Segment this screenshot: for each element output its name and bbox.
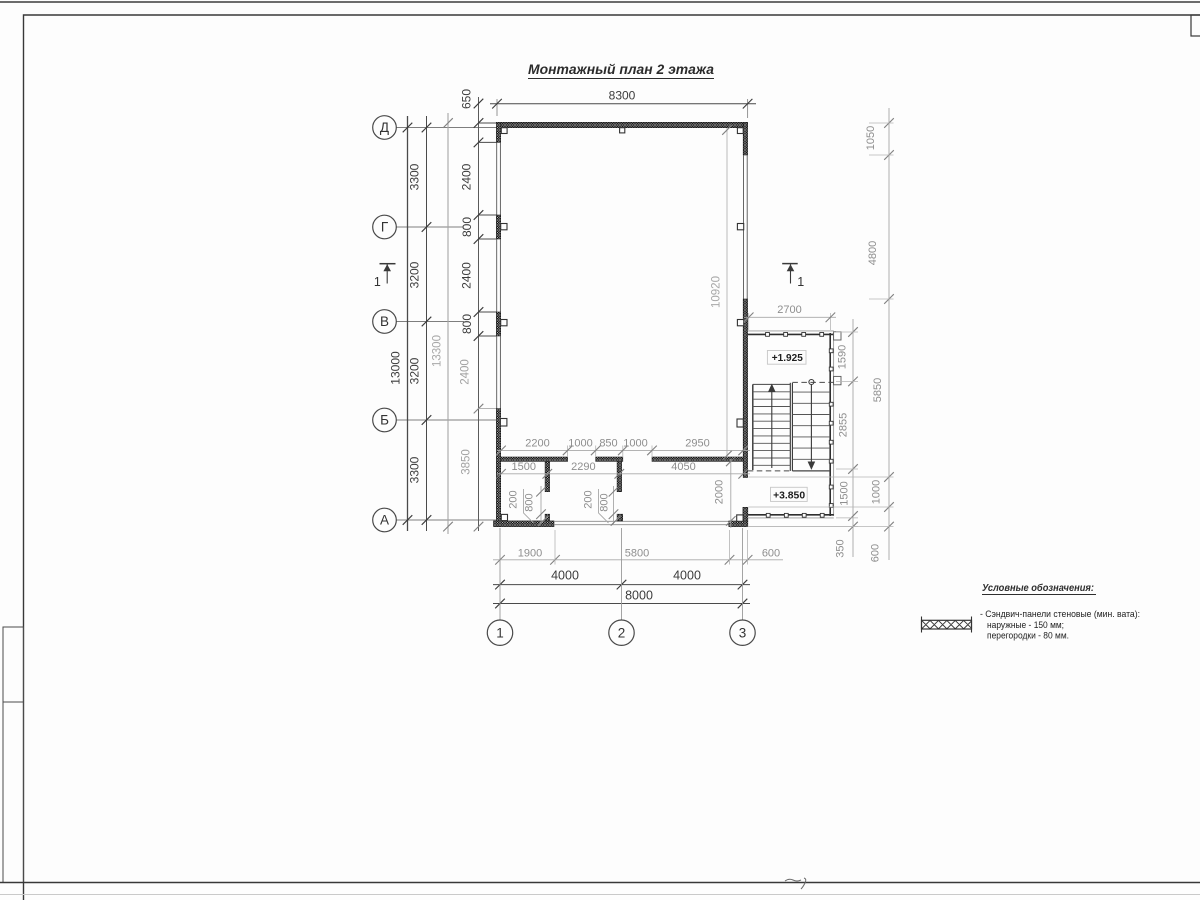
svg-text:800: 800	[524, 493, 536, 511]
svg-text:1590: 1590	[837, 345, 849, 369]
svg-text:1: 1	[797, 275, 804, 289]
svg-text:1: 1	[496, 626, 504, 641]
svg-text:350: 350	[835, 539, 847, 557]
svg-text:2855: 2855	[838, 413, 850, 437]
svg-text:2400: 2400	[460, 163, 474, 190]
svg-text:1: 1	[374, 275, 381, 289]
svg-text:3300: 3300	[408, 456, 422, 483]
svg-text:4000: 4000	[551, 569, 579, 583]
svg-text:3: 3	[739, 626, 747, 641]
svg-text:850: 850	[599, 438, 617, 450]
svg-text:10920: 10920	[711, 276, 723, 308]
svg-text:- Сэндвич-панели стеновые (мин: - Сэндвич-панели стеновые (мин. вата):	[980, 609, 1140, 620]
svg-text:13300: 13300	[432, 335, 444, 367]
svg-text:Г: Г	[381, 220, 389, 235]
svg-text:2700: 2700	[777, 304, 801, 316]
svg-text:3300: 3300	[408, 163, 422, 190]
svg-text:4800: 4800	[867, 241, 879, 265]
svg-text:3200: 3200	[408, 261, 422, 288]
svg-text:5850: 5850	[872, 378, 884, 402]
svg-text:4000: 4000	[673, 569, 701, 583]
svg-text:перегородки - 80 мм.: перегородки - 80 мм.	[987, 631, 1069, 642]
svg-text:8300: 8300	[609, 89, 636, 103]
svg-text:1500: 1500	[839, 481, 851, 505]
svg-text:Б: Б	[380, 413, 389, 428]
svg-text:1900: 1900	[518, 548, 542, 560]
svg-text:200: 200	[508, 490, 520, 508]
svg-text:4050: 4050	[671, 461, 695, 473]
svg-text:800: 800	[460, 217, 474, 237]
svg-text:2950: 2950	[685, 438, 709, 450]
svg-text:Условные обозначения:: Условные обозначения:	[982, 582, 1094, 594]
svg-text:+3.850: +3.850	[773, 489, 805, 501]
svg-text:2: 2	[618, 626, 626, 641]
svg-text:5800: 5800	[625, 548, 649, 560]
svg-text:1000: 1000	[568, 438, 592, 450]
svg-text:13000: 13000	[389, 351, 403, 385]
svg-text:Монтажный план 2 этажа: Монтажный план 2 этажа	[528, 62, 715, 77]
svg-text:8000: 8000	[625, 589, 653, 603]
svg-text:наружные - 150 мм;: наружные - 150 мм;	[987, 620, 1064, 631]
svg-text:А: А	[380, 513, 389, 528]
svg-text:3850: 3850	[461, 449, 473, 475]
svg-text:1000: 1000	[871, 480, 883, 504]
svg-text:2290: 2290	[571, 461, 595, 473]
svg-text:1050: 1050	[865, 126, 877, 150]
svg-text:В: В	[380, 314, 389, 329]
svg-text:2400: 2400	[460, 262, 474, 289]
svg-text:Д: Д	[380, 120, 389, 135]
svg-text:2000: 2000	[714, 480, 726, 504]
svg-text:1500: 1500	[512, 461, 536, 473]
svg-text:800: 800	[460, 314, 474, 334]
svg-text:650: 650	[460, 89, 474, 109]
svg-text:600: 600	[762, 548, 780, 560]
svg-text:2200: 2200	[525, 438, 549, 450]
svg-text:800: 800	[599, 493, 611, 511]
svg-text:3200: 3200	[408, 357, 422, 384]
svg-text:+1.925: +1.925	[772, 352, 803, 364]
svg-text:200: 200	[583, 490, 595, 508]
svg-text:600: 600	[870, 544, 882, 562]
svg-text:1000: 1000	[623, 438, 647, 450]
svg-text:2400: 2400	[460, 359, 472, 385]
